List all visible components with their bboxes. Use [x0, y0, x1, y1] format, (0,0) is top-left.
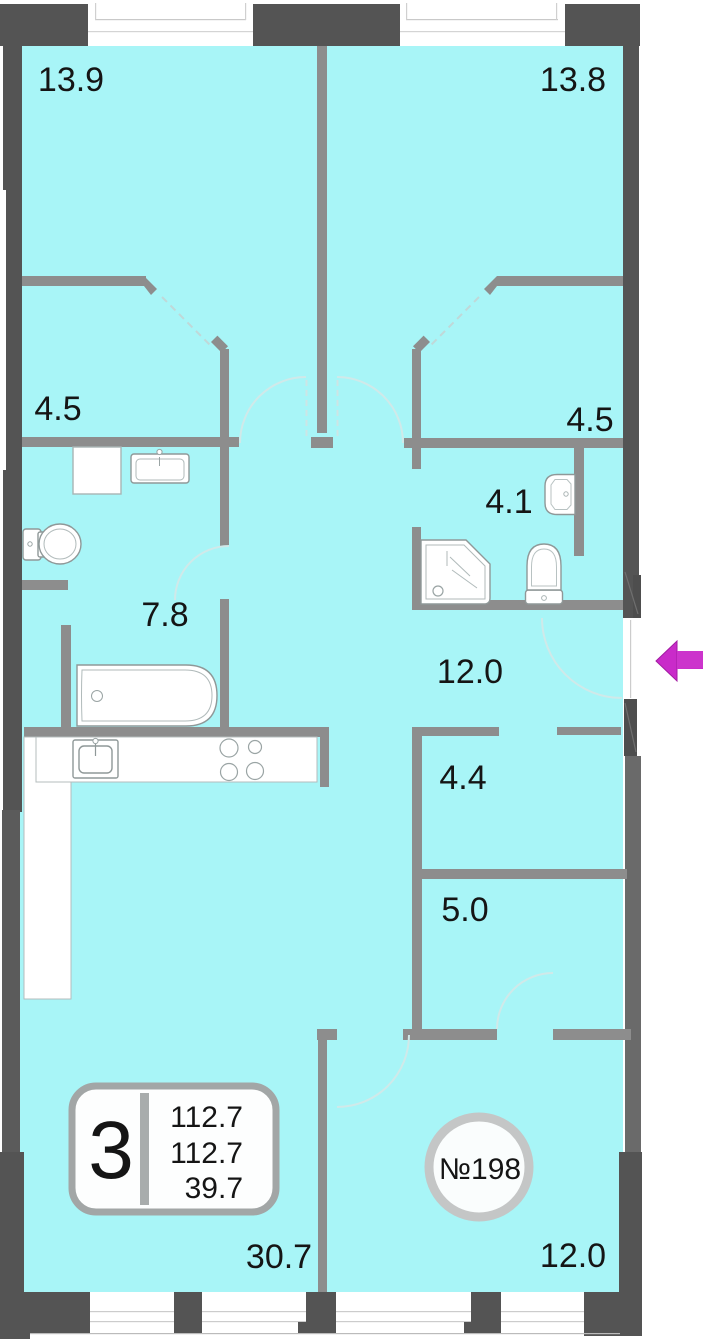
- svg-text:4.4: 4.4: [439, 759, 486, 797]
- svg-text:4.5: 4.5: [34, 390, 81, 428]
- svg-text:3: 3: [88, 1105, 134, 1196]
- svg-text:112.7: 112.7: [170, 1137, 243, 1170]
- svg-text:30.7: 30.7: [246, 1238, 312, 1276]
- svg-text:13.8: 13.8: [540, 61, 606, 99]
- svg-text:12.0: 12.0: [540, 1237, 606, 1275]
- svg-text:4.5: 4.5: [566, 401, 613, 439]
- svg-text:12.0: 12.0: [437, 653, 503, 691]
- svg-text:№198: №198: [439, 1153, 521, 1186]
- svg-text:7.8: 7.8: [141, 596, 188, 634]
- svg-text:4.1: 4.1: [485, 483, 532, 521]
- svg-text:5.0: 5.0: [441, 891, 488, 929]
- svg-text:112.7: 112.7: [170, 1101, 243, 1134]
- svg-text:39.7: 39.7: [185, 1172, 243, 1205]
- svg-text:13.9: 13.9: [38, 61, 104, 99]
